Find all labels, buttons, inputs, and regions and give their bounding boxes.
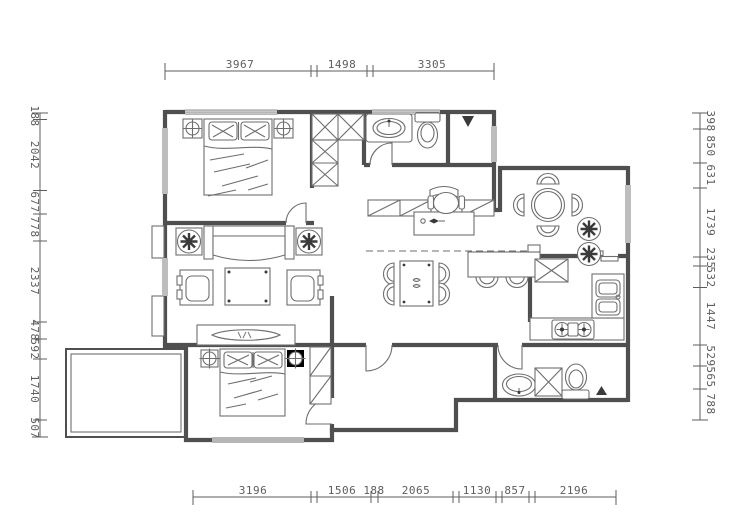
round-table (532, 189, 565, 222)
floor-drain-icon (462, 116, 474, 127)
dimensions-left: 188 2042 677 778 2337 478 592 1740 507 (28, 105, 48, 438)
dim-label-left-4: 2337 (28, 267, 41, 296)
floor-plan-page: 3967 1498 3305 3196 1506 188 2065 1130 8… (0, 0, 740, 514)
dim-label-right-7: 529 (704, 345, 717, 366)
dim-label-right-9: 788 (704, 393, 717, 414)
dim-label-bottom-0: 3196 (239, 484, 268, 497)
double-bed (204, 119, 272, 196)
fridge (535, 259, 568, 282)
bay-window-stubs (152, 226, 164, 336)
tea-chair (537, 226, 559, 237)
door-bathroom1 (370, 143, 392, 165)
tv-icon (212, 330, 280, 341)
bathroom-1-furniture (366, 113, 474, 148)
dim-label-bottom-3: 2065 (402, 484, 431, 497)
vanity-sink (503, 374, 536, 396)
armchair (287, 270, 323, 305)
bar-stool (476, 277, 498, 288)
tea-chair (514, 194, 525, 216)
bar-counter (468, 245, 540, 277)
plant-icon (298, 230, 321, 253)
dim-label-top-2: 3305 (418, 58, 447, 71)
dim-label-right-6: 1447 (704, 302, 717, 331)
dim-label-top-1: 1498 (328, 58, 357, 71)
window-living-left (162, 258, 167, 296)
dimensions-bottom: 3196 1506 188 2065 1130 857 2196 (193, 484, 616, 505)
floor-plan-drawing: 3967 1498 3305 3196 1506 188 2065 1130 8… (0, 0, 740, 514)
entry-wardrobe (312, 114, 364, 186)
dim-label-bottom-2: 188 (363, 484, 384, 497)
balcony-walls (66, 349, 186, 437)
bedroom-1-furniture (183, 114, 365, 196)
window-bedroom1-left (162, 128, 167, 194)
dining-chair (384, 263, 395, 285)
window-shower-right (491, 126, 496, 162)
window-bedroom1-top (185, 109, 277, 114)
door-study-room (366, 345, 392, 371)
dim-label-bottom-5: 857 (504, 484, 525, 497)
dim-label-right-2: 631 (704, 164, 717, 185)
dim-label-left-8: 507 (28, 417, 41, 438)
dim-label-right-5: 532 (704, 266, 717, 287)
bedroom-2-furniture (200, 347, 332, 416)
dim-label-right-1: 850 (704, 135, 717, 156)
dim-label-right-0: 398 (704, 110, 717, 131)
door-bedroom1 (286, 203, 306, 223)
dimensions-top: 3967 1498 3305 (165, 58, 494, 80)
door-bathroom2 (498, 345, 522, 369)
toilet (562, 364, 589, 399)
dim-label-right-8: 565 (704, 366, 717, 387)
dining-chair (439, 263, 450, 285)
wardrobe (310, 347, 331, 404)
dim-label-bottom-4: 1130 (463, 484, 492, 497)
dining-table (400, 261, 433, 306)
dining-chair (439, 283, 450, 305)
kitchen-sink (596, 280, 620, 315)
dim-label-left-0: 188 (28, 105, 41, 126)
plant-icon (578, 218, 601, 241)
tea-chair (572, 194, 583, 216)
dim-label-left-6: 592 (28, 338, 41, 359)
living-room-furniture (176, 226, 323, 345)
dim-label-top-0: 3967 (226, 58, 255, 71)
dining-furniture (366, 245, 540, 306)
coffee-table (225, 268, 270, 305)
tea-chair (537, 174, 559, 185)
floor-drain-icon (596, 386, 607, 395)
dining-chair (384, 283, 395, 305)
sofa (204, 226, 294, 261)
dim-label-left-3: 778 (28, 216, 41, 237)
plant-icon (578, 243, 601, 266)
armchair (177, 270, 213, 305)
bar-stool (506, 277, 528, 288)
tv-cabinet (197, 325, 295, 345)
dim-label-right-3: 1739 (704, 208, 717, 237)
washing-machine (535, 368, 562, 396)
toilet (415, 113, 440, 148)
gas-stove (552, 320, 594, 339)
vanity-sink (366, 114, 412, 142)
dim-label-left-2: 677 (28, 191, 41, 212)
dim-label-bottom-1: 1506 (328, 484, 357, 497)
kitchen-furniture (530, 259, 624, 340)
window-tearoom-right (625, 185, 630, 243)
plant-icon (178, 230, 201, 253)
window-bedroom2-bottom (212, 437, 304, 442)
dimensions-right: 398 850 631 1739 235 532 1447 529 565 78… (692, 110, 717, 420)
hall-furniture (368, 187, 494, 236)
dim-label-bottom-6: 2196 (560, 484, 589, 497)
dim-label-left-7: 1740 (28, 375, 41, 404)
dim-label-left-1: 2042 (28, 141, 41, 170)
double-bed (220, 349, 285, 416)
